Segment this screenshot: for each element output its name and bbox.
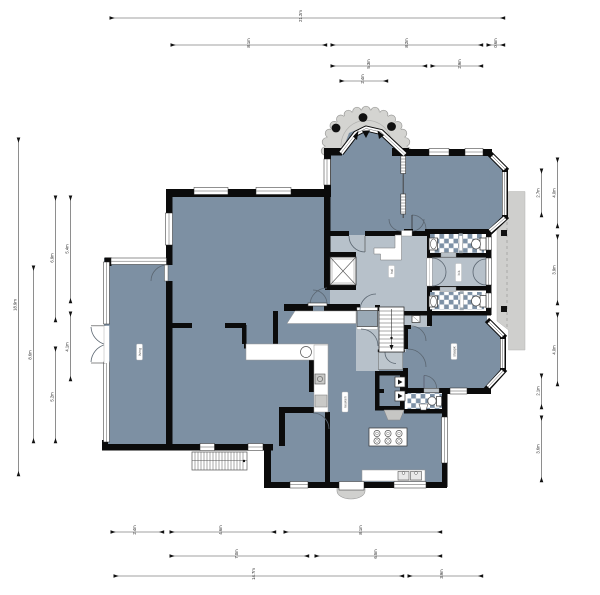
svg-text:hal: hal [390,269,394,274]
svg-text:7.0m: 7.0m [234,549,239,559]
svg-text:0.6m: 0.6m [493,38,498,48]
svg-text:18.9m: 18.9m [13,299,18,311]
svg-text:3.6m: 3.6m [536,444,541,454]
svg-text:6.9m: 6.9m [50,253,55,263]
svg-text:2.1m: 2.1m [536,386,541,396]
svg-text:living: living [138,348,142,356]
svg-text:2.4m: 2.4m [360,74,365,84]
svg-text:5.2m: 5.2m [50,392,55,402]
svg-text:8.1m: 8.1m [246,38,251,48]
svg-text:5.4m: 5.4m [65,244,70,254]
svg-text:4.1m: 4.1m [65,342,70,352]
svg-text:2.9m: 2.9m [457,59,462,69]
svg-text:21.2m: 21.2m [298,10,303,22]
svg-text:4.0m: 4.0m [552,188,557,198]
svg-text:2.4m: 2.4m [132,525,137,535]
svg-text:8.2m: 8.2m [404,38,409,48]
svg-text:slaapk: slaapk [452,346,456,357]
svg-text:14.7m: 14.7m [251,568,256,580]
svg-text:5.3m: 5.3m [366,59,371,69]
svg-text:b.k.: b.k. [457,270,461,276]
svg-text:4.6m: 4.6m [218,525,223,535]
svg-text:3.9m: 3.9m [439,569,444,579]
svg-text:2.7m: 2.7m [536,188,541,198]
svg-text:keuken: keuken [343,396,347,408]
svg-text:4.0m: 4.0m [552,345,557,355]
svg-text:8.1m: 8.1m [358,525,363,535]
svg-text:8.6m: 8.6m [28,350,33,360]
svg-text:6.5m: 6.5m [373,549,378,559]
svg-text:3.9m: 3.9m [552,265,557,275]
